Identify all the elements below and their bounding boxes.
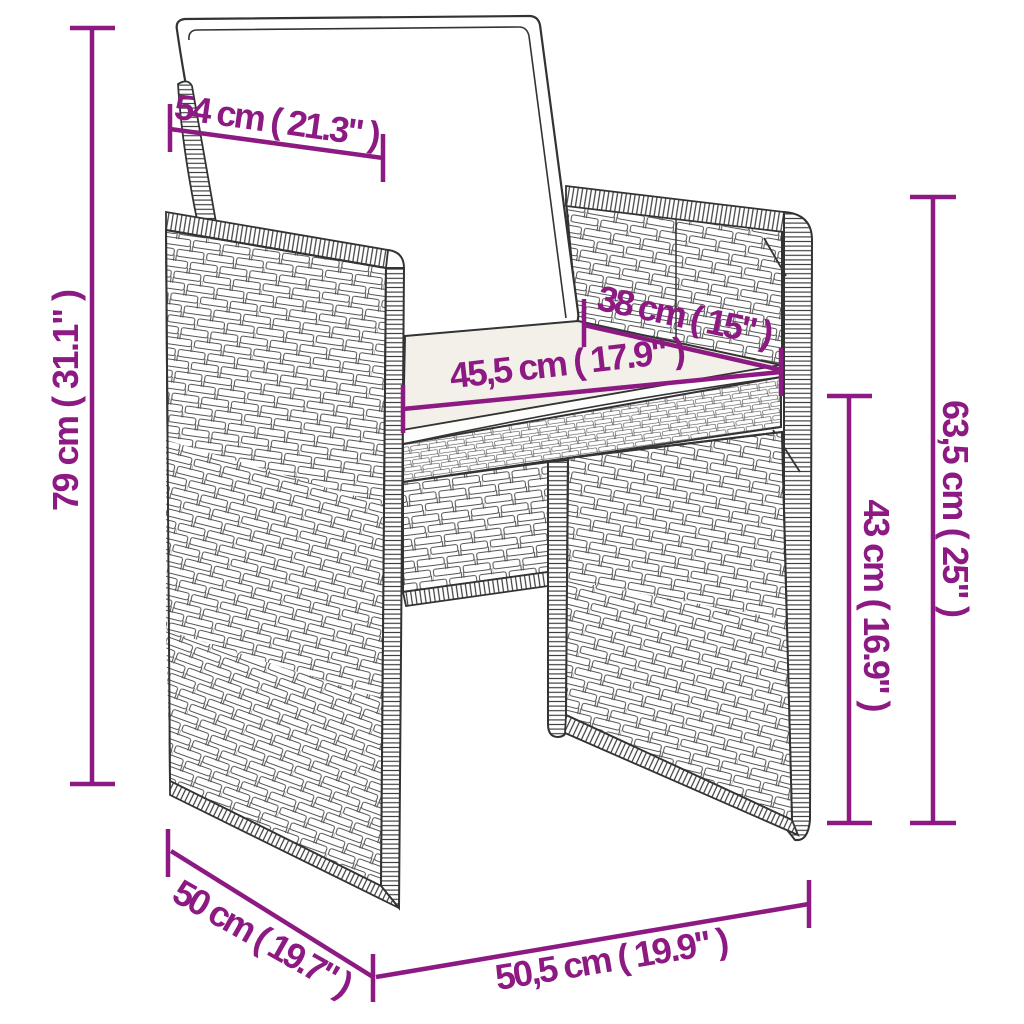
svg-text:43 cm ( 16.9" ): 43 cm ( 16.9" ): [856, 500, 897, 713]
svg-text:79 cm ( 31.1" ): 79 cm ( 31.1" ): [45, 289, 86, 511]
svg-text:63,5 cm ( 25" ): 63,5 cm ( 25" ): [935, 400, 976, 618]
